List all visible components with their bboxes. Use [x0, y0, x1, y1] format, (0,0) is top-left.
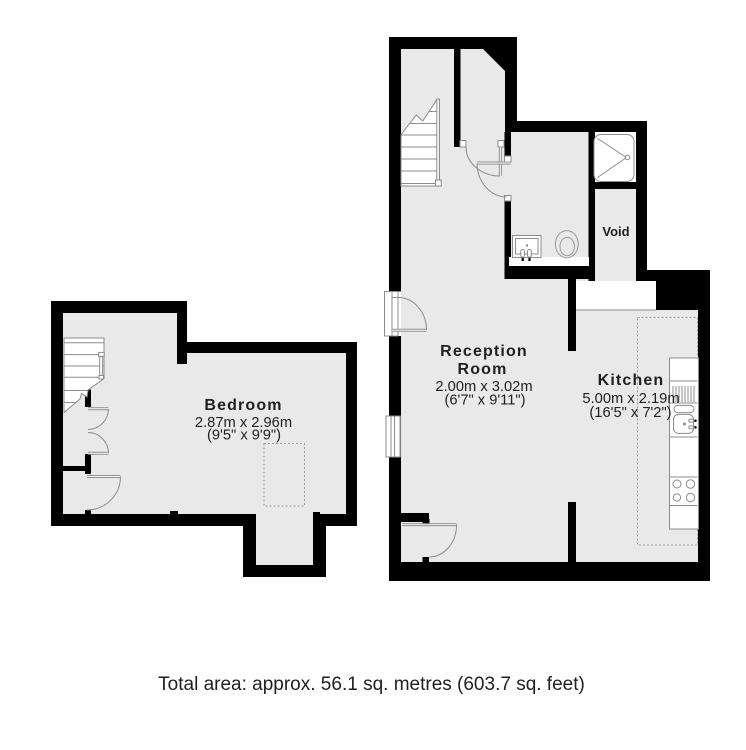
svg-text:(16'5" x 7'2"): (16'5" x 7'2")	[589, 405, 671, 421]
svg-text:Total area: approx. 56.1 sq. m: Total area: approx. 56.1 sq. metres (603…	[158, 674, 585, 695]
svg-text:(6'7" x 9'11"): (6'7" x 9'11")	[444, 392, 525, 408]
svg-text:Room: Room	[458, 361, 508, 378]
svg-text:(9'5" x 9'9"): (9'5" x 9'9")	[207, 428, 281, 444]
svg-text:Reception: Reception	[440, 343, 528, 360]
svg-text:Void: Void	[602, 224, 629, 239]
svg-text:Kitchen: Kitchen	[598, 372, 665, 389]
svg-text:Bedroom: Bedroom	[204, 397, 282, 414]
